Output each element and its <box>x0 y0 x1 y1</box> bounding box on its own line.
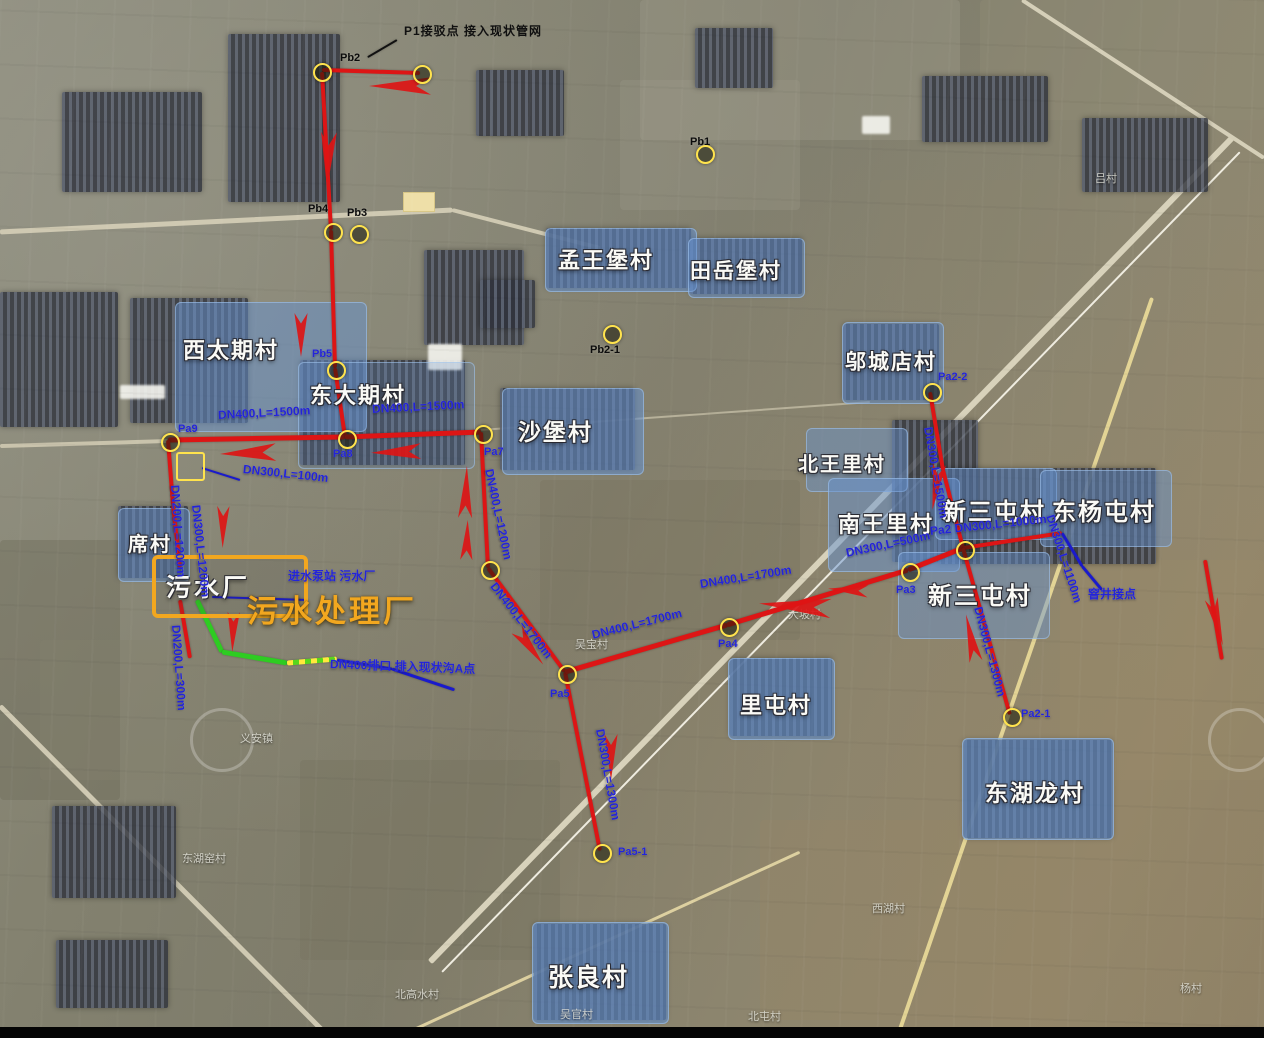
node-marker[interactable] <box>481 561 500 580</box>
node-label: Pa3 <box>896 584 916 596</box>
node-marker[interactable] <box>593 844 612 863</box>
field-patch <box>300 760 560 960</box>
minor-place-label: 东湖窑村 <box>182 850 226 866</box>
node-label: Pb3 <box>347 207 367 219</box>
minor-place-label: 吕村 <box>1095 170 1117 186</box>
node-label: Pb5 <box>312 348 332 360</box>
village-label: 里屯村 <box>740 688 812 720</box>
building-cluster <box>476 70 564 136</box>
node-label: Pb1 <box>690 136 710 148</box>
pipe-spec-label: 进水泵站 污水厂 <box>288 567 375 584</box>
node-marker[interactable] <box>603 325 622 344</box>
flow-arrow <box>216 506 231 548</box>
node-marker[interactable] <box>161 433 180 452</box>
sewage-plant-title: 污水处理厂 <box>247 586 417 631</box>
node-label: Pa4 <box>718 638 738 650</box>
node-label: Pb2 <box>340 52 360 64</box>
node-label: Pa2-2 <box>938 371 967 383</box>
minor-place-label: 北屯村 <box>748 1008 781 1024</box>
node-marker[interactable] <box>956 541 975 560</box>
minor-place-label: 北高水村 <box>395 986 439 1002</box>
minor-place-label: 西湖村 <box>872 900 905 916</box>
node-marker[interactable] <box>350 225 369 244</box>
node-marker[interactable] <box>474 425 493 444</box>
bright-roof-patch <box>862 116 890 134</box>
field-patch <box>760 820 1060 1020</box>
village-label: 西太期村 <box>183 333 279 365</box>
village-label: 沙堡村 <box>518 413 593 447</box>
building-cluster <box>922 76 1048 142</box>
node-marker[interactable] <box>324 223 343 242</box>
flow-arrow <box>457 466 475 519</box>
flow-arrow <box>220 442 277 464</box>
node-marker[interactable] <box>338 430 357 449</box>
road <box>0 208 452 235</box>
node-marker[interactable] <box>1003 708 1022 727</box>
map-canvas[interactable]: 污水厂 污水处理厂 P1接驳点 接入现状管网 西太期村东大期村沙堡村孟王堡村田岳… <box>0 0 1264 1038</box>
building-cluster <box>0 292 118 427</box>
node-label: Pa2-1 <box>1021 708 1050 720</box>
bottom-letterbox-bar <box>0 1027 1264 1038</box>
node-marker[interactable] <box>720 618 739 637</box>
node-marker[interactable] <box>413 65 432 84</box>
outfall-line <box>202 467 241 481</box>
connection-point-note: P1接驳点 接入现状管网 <box>404 22 542 39</box>
minor-place-label: 吴官村 <box>560 1006 593 1022</box>
node-label: Pa5-1 <box>618 846 647 858</box>
watermark-circle <box>1208 708 1264 772</box>
node-label: Pa8 <box>333 448 353 460</box>
node-marker[interactable] <box>313 63 332 82</box>
node-marker[interactable] <box>558 665 577 684</box>
building-cluster <box>480 280 535 328</box>
village-label: 邬城店村 <box>845 346 937 376</box>
road <box>0 439 168 448</box>
minor-place-label: 杨村 <box>1180 980 1202 996</box>
node-label: Pb2-1 <box>590 344 620 356</box>
node-marker[interactable] <box>923 383 942 402</box>
village-label: 席村 <box>128 528 172 557</box>
building-cluster <box>56 940 168 1008</box>
node-label: Pa5 <box>550 688 570 700</box>
pipe-spec-label: DN300,L=1300m <box>593 728 623 821</box>
flow-arrow <box>459 520 474 560</box>
pump-station-box <box>176 452 205 481</box>
field-patch <box>880 180 1100 300</box>
village-label: 北王里村 <box>798 448 886 477</box>
village-label: 东杨屯村 <box>1052 492 1156 527</box>
pipe-spec-label: DN400排口 排入现状沟A点 <box>330 655 476 677</box>
village-label: 东湖龙村 <box>985 774 1085 808</box>
bright-roof-patch <box>120 385 165 399</box>
bridge-rect <box>403 192 435 212</box>
village-label: 张良村 <box>548 958 629 994</box>
village-label: 田岳堡村 <box>690 255 782 285</box>
node-marker[interactable] <box>327 361 346 380</box>
node-label: Pa7 <box>484 446 504 458</box>
building-cluster <box>695 28 773 88</box>
building-cluster <box>52 806 176 898</box>
village-label: 孟王堡村 <box>558 243 654 275</box>
minor-place-label: 义安镇 <box>240 730 273 746</box>
node-marker[interactable] <box>901 563 920 582</box>
node-label: Pb4 <box>308 203 328 215</box>
leader-line <box>367 39 397 58</box>
pipe-spec-label: 窨井接点 <box>1088 585 1136 602</box>
building-cluster <box>62 92 202 192</box>
node-label: Pa9 <box>178 423 198 435</box>
